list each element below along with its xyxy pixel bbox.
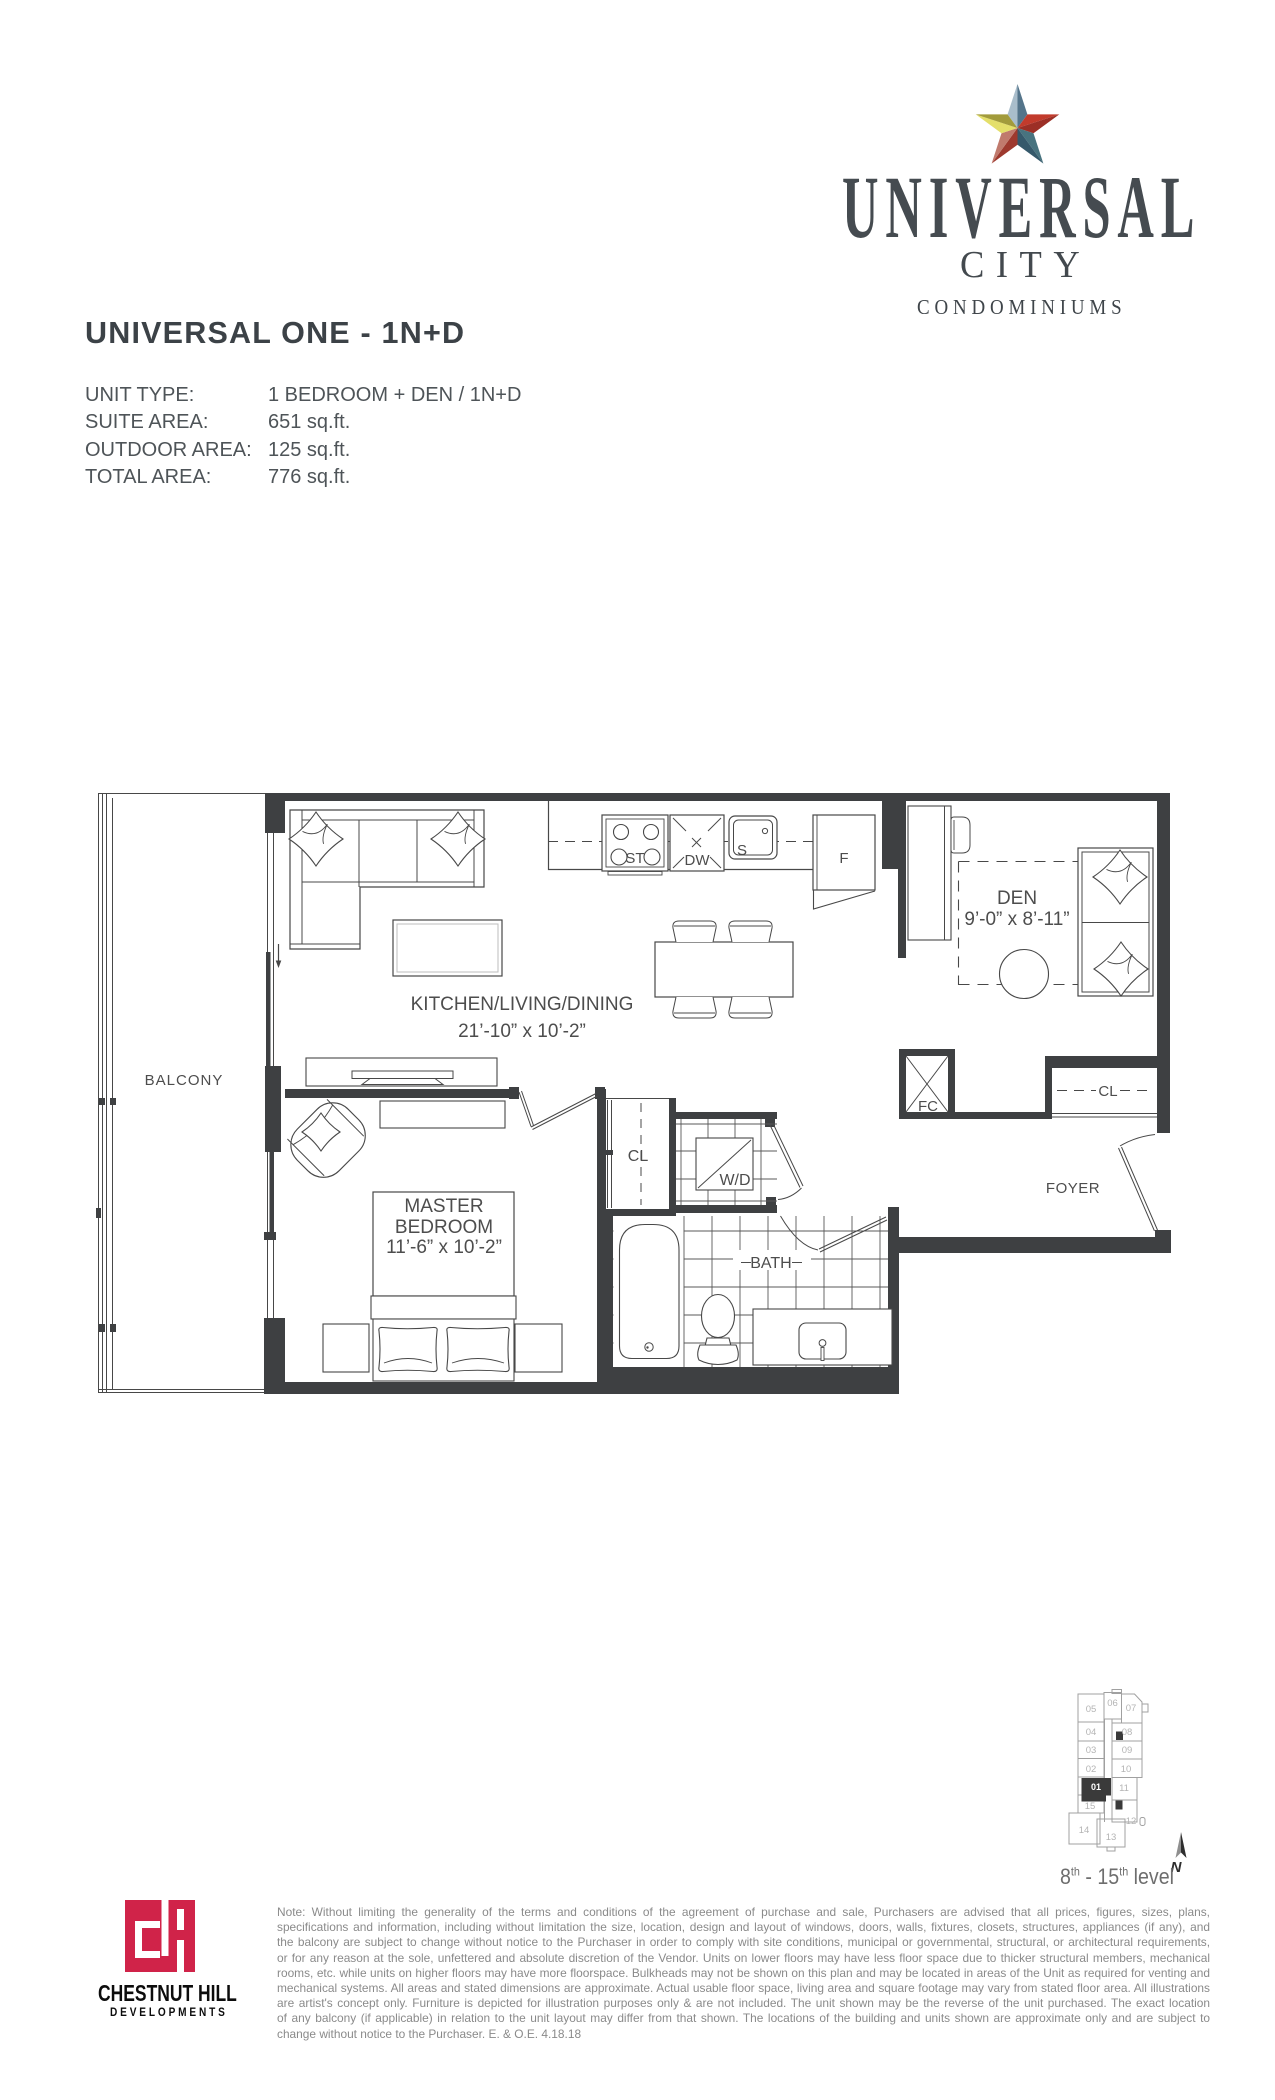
svg-text:13: 13 (1106, 1832, 1117, 1843)
svg-text:06: 06 (1107, 1698, 1118, 1709)
svg-text:07: 07 (1126, 1703, 1137, 1714)
svg-text:MASTER: MASTER (404, 1196, 483, 1217)
svg-text:11’-6” x 10’-2”: 11’-6” x 10’-2” (386, 1237, 502, 1258)
svg-text:09: 09 (1122, 1745, 1133, 1756)
svg-text:BEDROOM: BEDROOM (395, 1217, 493, 1238)
svg-text:08: 08 (1122, 1727, 1133, 1738)
svg-text:CL: CL (628, 1148, 649, 1165)
svg-text:BALCONY: BALCONY (145, 1072, 224, 1089)
svg-text:02: 02 (1086, 1764, 1097, 1775)
svg-text:CL: CL (1098, 1083, 1117, 1100)
svg-text:KITCHEN/LIVING/DINING: KITCHEN/LIVING/DINING (411, 994, 634, 1015)
svg-text:15: 15 (1085, 1801, 1096, 1812)
svg-text:05: 05 (1086, 1704, 1097, 1715)
svg-text:04: 04 (1086, 1727, 1097, 1738)
svg-text:10: 10 (1121, 1764, 1132, 1775)
svg-text:14: 14 (1079, 1825, 1090, 1836)
svg-text:W/D: W/D (719, 1172, 750, 1189)
svg-text:ST: ST (625, 850, 644, 867)
svg-text:BATH: BATH (750, 1255, 791, 1272)
svg-text:03: 03 (1086, 1745, 1097, 1756)
svg-text:9’-0” x 8’-11”: 9’-0” x 8’-11” (964, 909, 1069, 930)
svg-text:01: 01 (1091, 1782, 1101, 1792)
svg-text:DW: DW (685, 852, 711, 869)
svg-text:FC: FC (918, 1098, 938, 1115)
svg-text:12: 12 (1126, 1816, 1137, 1827)
svg-text:F: F (839, 850, 848, 867)
svg-text:11: 11 (1119, 1783, 1129, 1794)
svg-text:FOYER: FOYER (1046, 1180, 1100, 1197)
svg-text:DEN: DEN (997, 888, 1037, 909)
svg-text:21’-10” x 10’-2”: 21’-10” x 10’-2” (458, 1021, 586, 1042)
svg-text:S: S (737, 842, 747, 859)
